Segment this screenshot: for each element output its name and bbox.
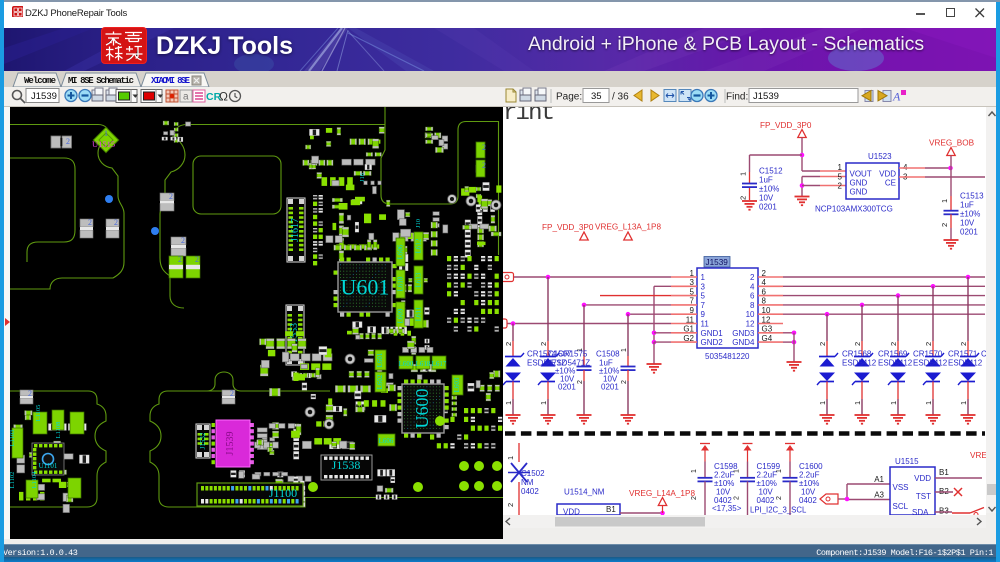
svg-text:±10%: ±10% [960, 210, 980, 219]
svg-text:11: 11 [686, 315, 695, 324]
svg-text:J1539: J1539 [31, 91, 57, 102]
svg-text:FP_VDD_3P0: FP_VDD_3P0 [542, 223, 594, 232]
svg-text:J1532: J1532 [199, 432, 207, 449]
svg-text:U1514_NM: U1514_NM [564, 488, 605, 497]
svg-text:1uF: 1uF [960, 201, 974, 210]
svg-text:L1102: L1102 [10, 472, 16, 489]
svg-text:7: 7 [701, 301, 706, 310]
svg-text:±10%: ±10% [759, 185, 779, 194]
svg-text:10V: 10V [759, 194, 774, 203]
svg-text:Welcome: Welcome [24, 76, 56, 86]
svg-text:L618: L618 [416, 360, 431, 368]
svg-text:L1108: L1108 [55, 422, 62, 439]
svg-text:CR1569: CR1569 [878, 350, 908, 359]
svg-text:/ 36: / 36 [612, 92, 629, 103]
svg-text:VDD: VDD [879, 170, 896, 179]
svg-text:L1104: L1104 [31, 471, 38, 488]
svg-text:2: 2 [750, 273, 755, 282]
svg-text:2: 2 [114, 218, 118, 227]
svg-text:2: 2 [66, 137, 70, 146]
svg-text:<17,35>: <17,35> [712, 504, 742, 513]
svg-text:2: 2 [504, 342, 513, 346]
svg-text:GND4: GND4 [732, 338, 755, 347]
svg-text:1: 1 [889, 401, 898, 405]
svg-text:1: 1 [818, 401, 827, 405]
svg-text:U600: U600 [412, 389, 432, 429]
svg-text:2: 2 [178, 255, 182, 264]
svg-text:GND2: GND2 [701, 338, 724, 347]
svg-text:5: 5 [690, 287, 695, 296]
svg-text:GND1: GND1 [701, 329, 724, 338]
svg-text:2: 2 [506, 503, 515, 507]
svg-text:2: 2 [776, 496, 783, 500]
svg-text:VREG_BOB: VREG_BOB [929, 139, 975, 148]
svg-text:TST: TST [916, 492, 931, 501]
svg-text:CR1575: CR1575 [558, 350, 588, 359]
svg-text:ESD5412: ESD5412 [913, 359, 948, 368]
svg-text:1: 1 [739, 172, 748, 176]
svg-text:1: 1 [959, 401, 968, 405]
svg-text:U1523: U1523 [868, 152, 892, 161]
svg-text:J1539: J1539 [225, 432, 236, 456]
svg-text:NM: NM [521, 478, 534, 487]
svg-text:VOUT: VOUT [850, 170, 872, 179]
svg-text:C1512: C1512 [759, 167, 783, 176]
svg-text:6: 6 [750, 292, 755, 301]
svg-text:4: 4 [762, 278, 767, 287]
svg-text:4: 4 [750, 282, 755, 291]
svg-text:0201: 0201 [960, 228, 978, 237]
svg-text:A3: A3 [874, 491, 884, 500]
svg-text:B1: B1 [939, 468, 949, 477]
svg-text:1: 1 [506, 456, 515, 460]
svg-text:J1100: J1100 [269, 486, 297, 500]
svg-text:1: 1 [539, 401, 548, 405]
svg-text:1: 1 [690, 269, 695, 278]
svg-text:1: 1 [104, 129, 108, 138]
svg-text:10V: 10V [960, 219, 975, 228]
svg-text:VSS: VSS [893, 483, 909, 492]
svg-text:10: 10 [746, 310, 755, 319]
svg-text:10: 10 [762, 306, 771, 315]
svg-text:12: 12 [762, 315, 771, 324]
svg-text:LPI_I2C_3_SCL: LPI_I2C_3_SCL [750, 506, 807, 515]
svg-text:VDD: VDD [914, 474, 931, 483]
svg-text:L617: L617 [432, 360, 447, 368]
svg-text:3: 3 [701, 282, 706, 291]
svg-text:CR1571: CR1571 [948, 350, 978, 359]
svg-text:2: 2 [853, 342, 862, 346]
svg-text:2: 2 [739, 196, 748, 200]
svg-text:U1515: U1515 [92, 139, 115, 149]
svg-text:L600: L600 [399, 360, 414, 368]
svg-text:12: 12 [746, 320, 755, 329]
svg-text:Find:: Find: [726, 92, 748, 103]
svg-text:2: 2 [734, 496, 741, 500]
svg-text:FP_VDD_3P0: FP_VDD_3P0 [760, 121, 812, 130]
svg-text:2: 2 [181, 236, 185, 245]
svg-text:CE: CE [885, 179, 896, 188]
svg-text:9: 9 [701, 310, 706, 319]
svg-text:rint: rint [503, 107, 555, 127]
svg-text:GND3: GND3 [732, 329, 755, 338]
svg-text:ESD5412: ESD5412 [842, 359, 877, 368]
svg-text:A1: A1 [874, 475, 884, 484]
svg-text:ESD5412: ESD5412 [948, 359, 983, 368]
svg-text:U1515: U1515 [895, 457, 919, 466]
svg-text:1: 1 [621, 348, 628, 352]
svg-text:VREG_L13A_1P8: VREG_L13A_1P8 [595, 223, 661, 232]
svg-text:GND: GND [850, 188, 868, 197]
svg-text:2: 2 [889, 342, 898, 346]
svg-text:0201: 0201 [601, 383, 619, 392]
svg-text:8: 8 [762, 297, 767, 306]
svg-text:J10: J10 [415, 219, 422, 228]
svg-text:VDD: VDD [563, 508, 580, 516]
svg-text:2: 2 [577, 380, 584, 384]
svg-text:1: 1 [838, 163, 843, 172]
svg-text:A: A [892, 90, 901, 104]
svg-text:GND: GND [850, 179, 868, 188]
svg-text:J16: J16 [359, 172, 366, 182]
svg-text:C1502: C1502 [521, 469, 545, 478]
svg-text:2: 2 [482, 161, 486, 170]
svg-text:L603: L603 [453, 377, 461, 392]
svg-text:J1538: J1538 [332, 458, 361, 472]
svg-text:J1539: J1539 [706, 258, 729, 267]
svg-text:1uF: 1uF [759, 176, 773, 185]
svg-text:G4: G4 [762, 334, 773, 343]
svg-text:CR1568: CR1568 [842, 350, 872, 359]
svg-text:0402: 0402 [521, 487, 539, 496]
svg-text:2: 2 [818, 342, 827, 346]
svg-text:2: 2 [924, 342, 933, 346]
svg-text:0402: 0402 [757, 496, 775, 505]
svg-text:1: 1 [853, 401, 862, 405]
svg-text:SDA: SDA [912, 508, 929, 515]
svg-text:XIAOMI 8SE: XIAOMI 8SE [151, 76, 191, 86]
svg-text:ESD5412: ESD5412 [878, 359, 913, 368]
svg-text:a: a [183, 92, 189, 103]
svg-text:2: 2 [959, 342, 968, 346]
svg-text:2: 2 [88, 218, 92, 227]
svg-text:1: 1 [504, 401, 513, 405]
svg-text:L611: L611 [415, 306, 423, 321]
svg-text:U1101: U1101 [39, 462, 58, 470]
svg-text:L609: L609 [397, 308, 405, 323]
svg-text:L612: L612 [415, 238, 423, 253]
svg-text:L610: L610 [397, 276, 405, 291]
svg-text:2: 2 [838, 182, 843, 191]
svg-text:6: 6 [762, 287, 767, 296]
svg-text:11: 11 [701, 320, 710, 329]
svg-text:2: 2 [539, 342, 548, 346]
svg-text:VREG: VREG [970, 451, 986, 460]
svg-text:L606: L606 [397, 244, 405, 259]
svg-text:7: 7 [690, 297, 695, 306]
svg-text:3: 3 [690, 278, 695, 287]
svg-text:SCL: SCL [893, 502, 909, 511]
svg-text:J1539: J1539 [753, 91, 779, 102]
svg-text:B1: B1 [606, 505, 616, 514]
svg-text:5: 5 [701, 292, 706, 301]
svg-text:2: 2 [169, 192, 173, 201]
svg-text:5: 5 [838, 173, 843, 182]
svg-text:2: 2 [195, 255, 199, 264]
svg-text:Ω: Ω [219, 90, 228, 104]
svg-text:CR1570: CR1570 [913, 350, 943, 359]
svg-text:G2: G2 [683, 334, 694, 343]
svg-text:9: 9 [690, 306, 695, 315]
svg-text:5035481220: 5035481220 [705, 352, 750, 361]
svg-text:L601: L601 [376, 352, 384, 367]
svg-text:L613: L613 [415, 272, 423, 287]
svg-text:2: 2 [940, 223, 949, 227]
svg-text:1: 1 [924, 401, 933, 405]
svg-text:0201: 0201 [558, 383, 576, 392]
svg-text:8: 8 [750, 301, 755, 310]
svg-text:L1105: L1105 [35, 405, 42, 422]
svg-text:NCP103AMX300TCG: NCP103AMX300TCG [815, 205, 893, 214]
svg-text:0201: 0201 [759, 203, 777, 212]
svg-text:G1: G1 [683, 325, 694, 334]
svg-text:J1617: J1617 [290, 218, 301, 242]
svg-text:L606: L606 [379, 437, 394, 445]
svg-text:0402: 0402 [799, 496, 817, 505]
svg-text:1: 1 [701, 273, 706, 282]
svg-text:L602: L602 [376, 374, 384, 389]
svg-text:1: 1 [940, 199, 949, 203]
svg-text:2: 2 [691, 496, 698, 500]
svg-text:C1513: C1513 [960, 192, 984, 201]
svg-text:2: 2 [762, 269, 767, 278]
svg-text:2: 2 [28, 389, 32, 398]
svg-text:U601: U601 [341, 275, 390, 300]
svg-text:1: 1 [691, 469, 698, 473]
svg-text:35: 35 [591, 91, 602, 102]
svg-text:2: 2 [621, 380, 628, 384]
svg-text:C1508: C1508 [596, 350, 620, 359]
svg-text:G3: G3 [762, 325, 773, 334]
svg-text:2: 2 [230, 389, 234, 398]
svg-text:MI 8SE Schematic: MI 8SE Schematic [68, 76, 134, 86]
svg-text:L1103: L1103 [10, 430, 16, 447]
svg-text:Page:: Page: [556, 92, 582, 103]
svg-text:2: 2 [482, 143, 486, 152]
svg-text:B3: B3 [939, 507, 949, 516]
